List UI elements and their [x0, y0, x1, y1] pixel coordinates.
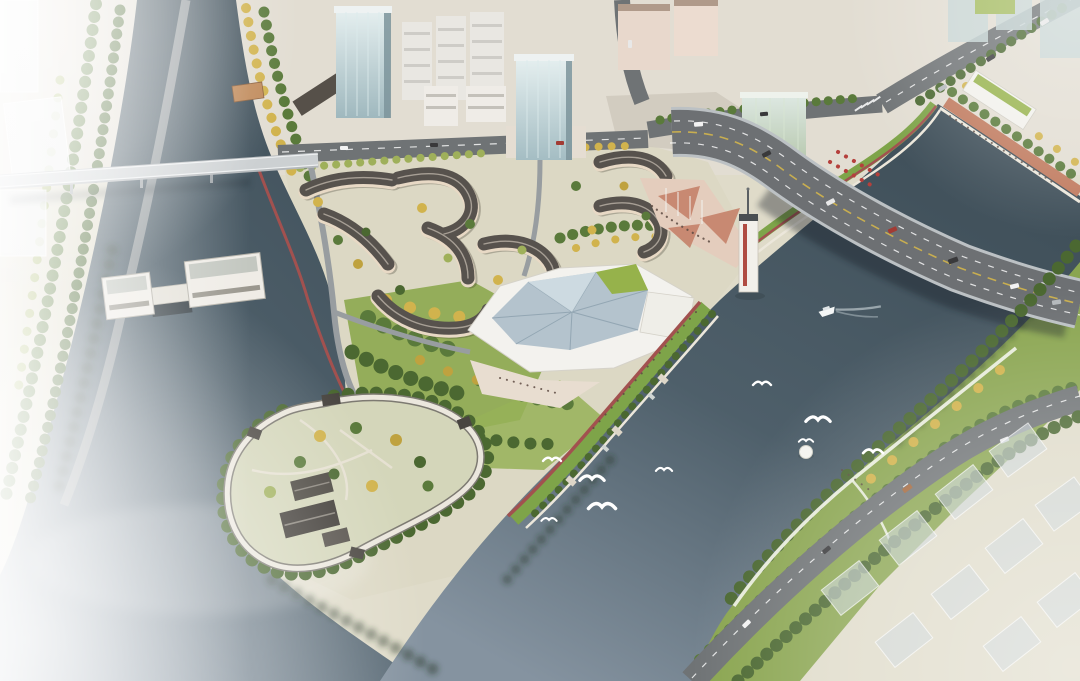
tower-shadow: [735, 292, 765, 300]
rendering-stage: [0, 0, 1080, 681]
aerial-rendering-canvas: [0, 0, 1080, 681]
glass-tower-a: [334, 6, 392, 118]
